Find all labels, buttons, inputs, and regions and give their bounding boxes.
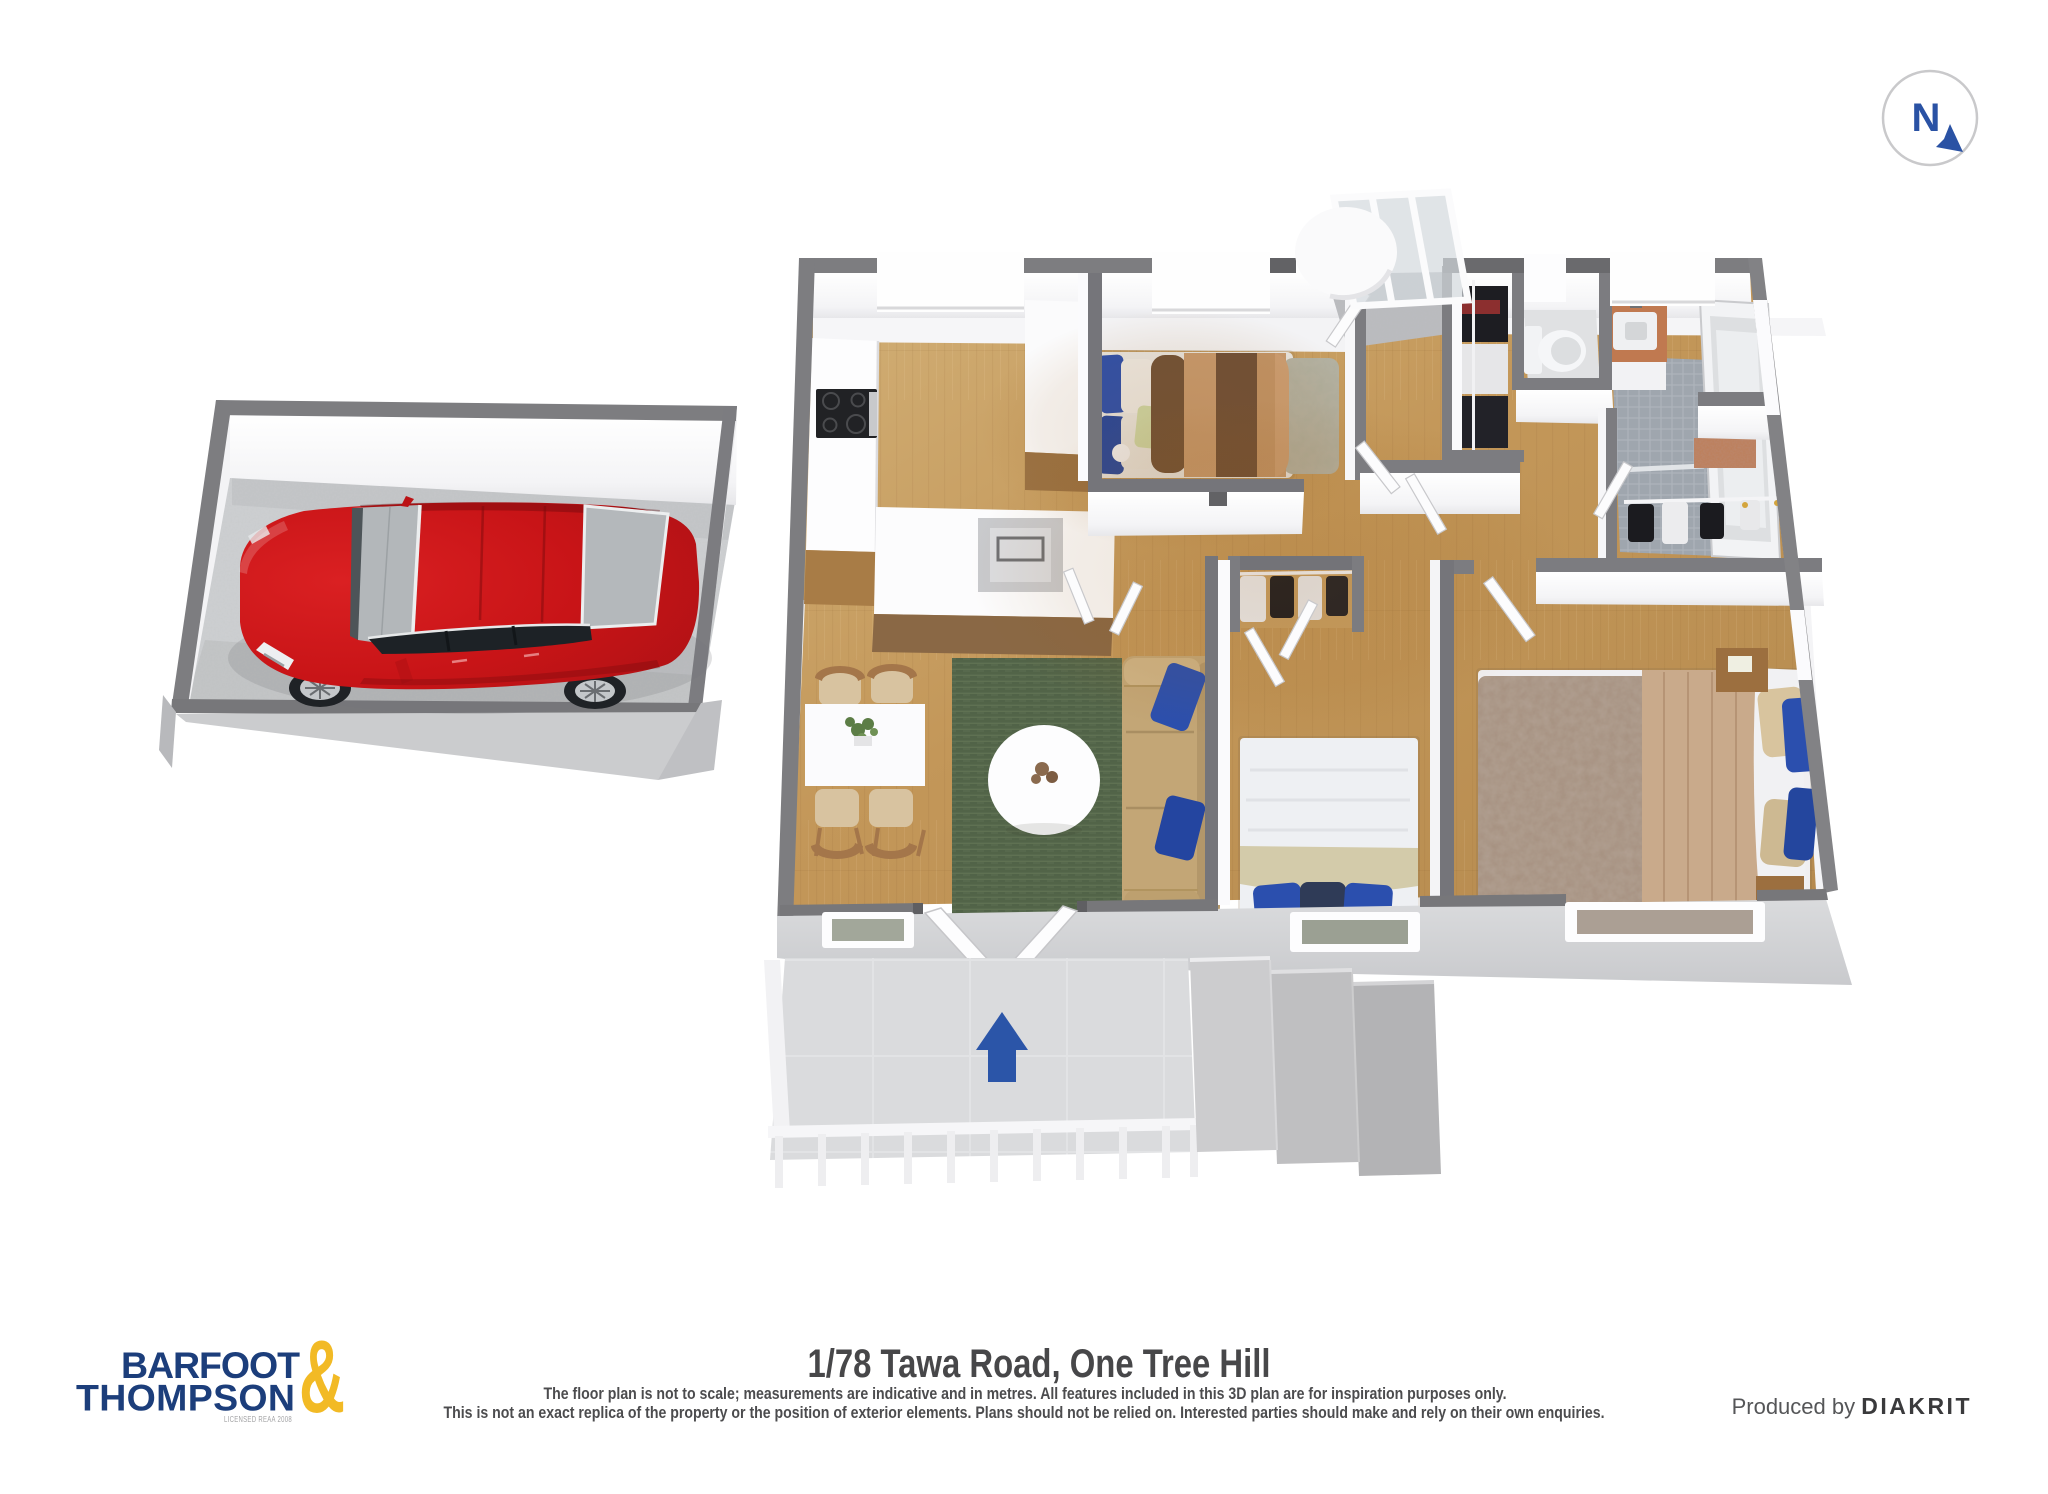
svg-text:&: &	[299, 1319, 345, 1434]
svg-text:Produced by DIAKRIT: Produced by DIAKRIT	[1732, 1393, 1972, 1419]
svg-text:LICENSED REAA 2008: LICENSED REAA 2008	[224, 1415, 292, 1424]
svg-text:1/78 Tawa Road, One Tree Hill: 1/78 Tawa Road, One Tree Hill	[808, 1342, 1271, 1386]
svg-text:The floor plan is not to scale: The floor plan is not to scale; measurem…	[544, 1384, 1507, 1403]
svg-text:N: N	[1912, 96, 1941, 140]
svg-text:This is not an exact replica o: This is not an exact replica of the prop…	[444, 1403, 1605, 1422]
svg-text:THOMPSON: THOMPSON	[76, 1377, 295, 1419]
